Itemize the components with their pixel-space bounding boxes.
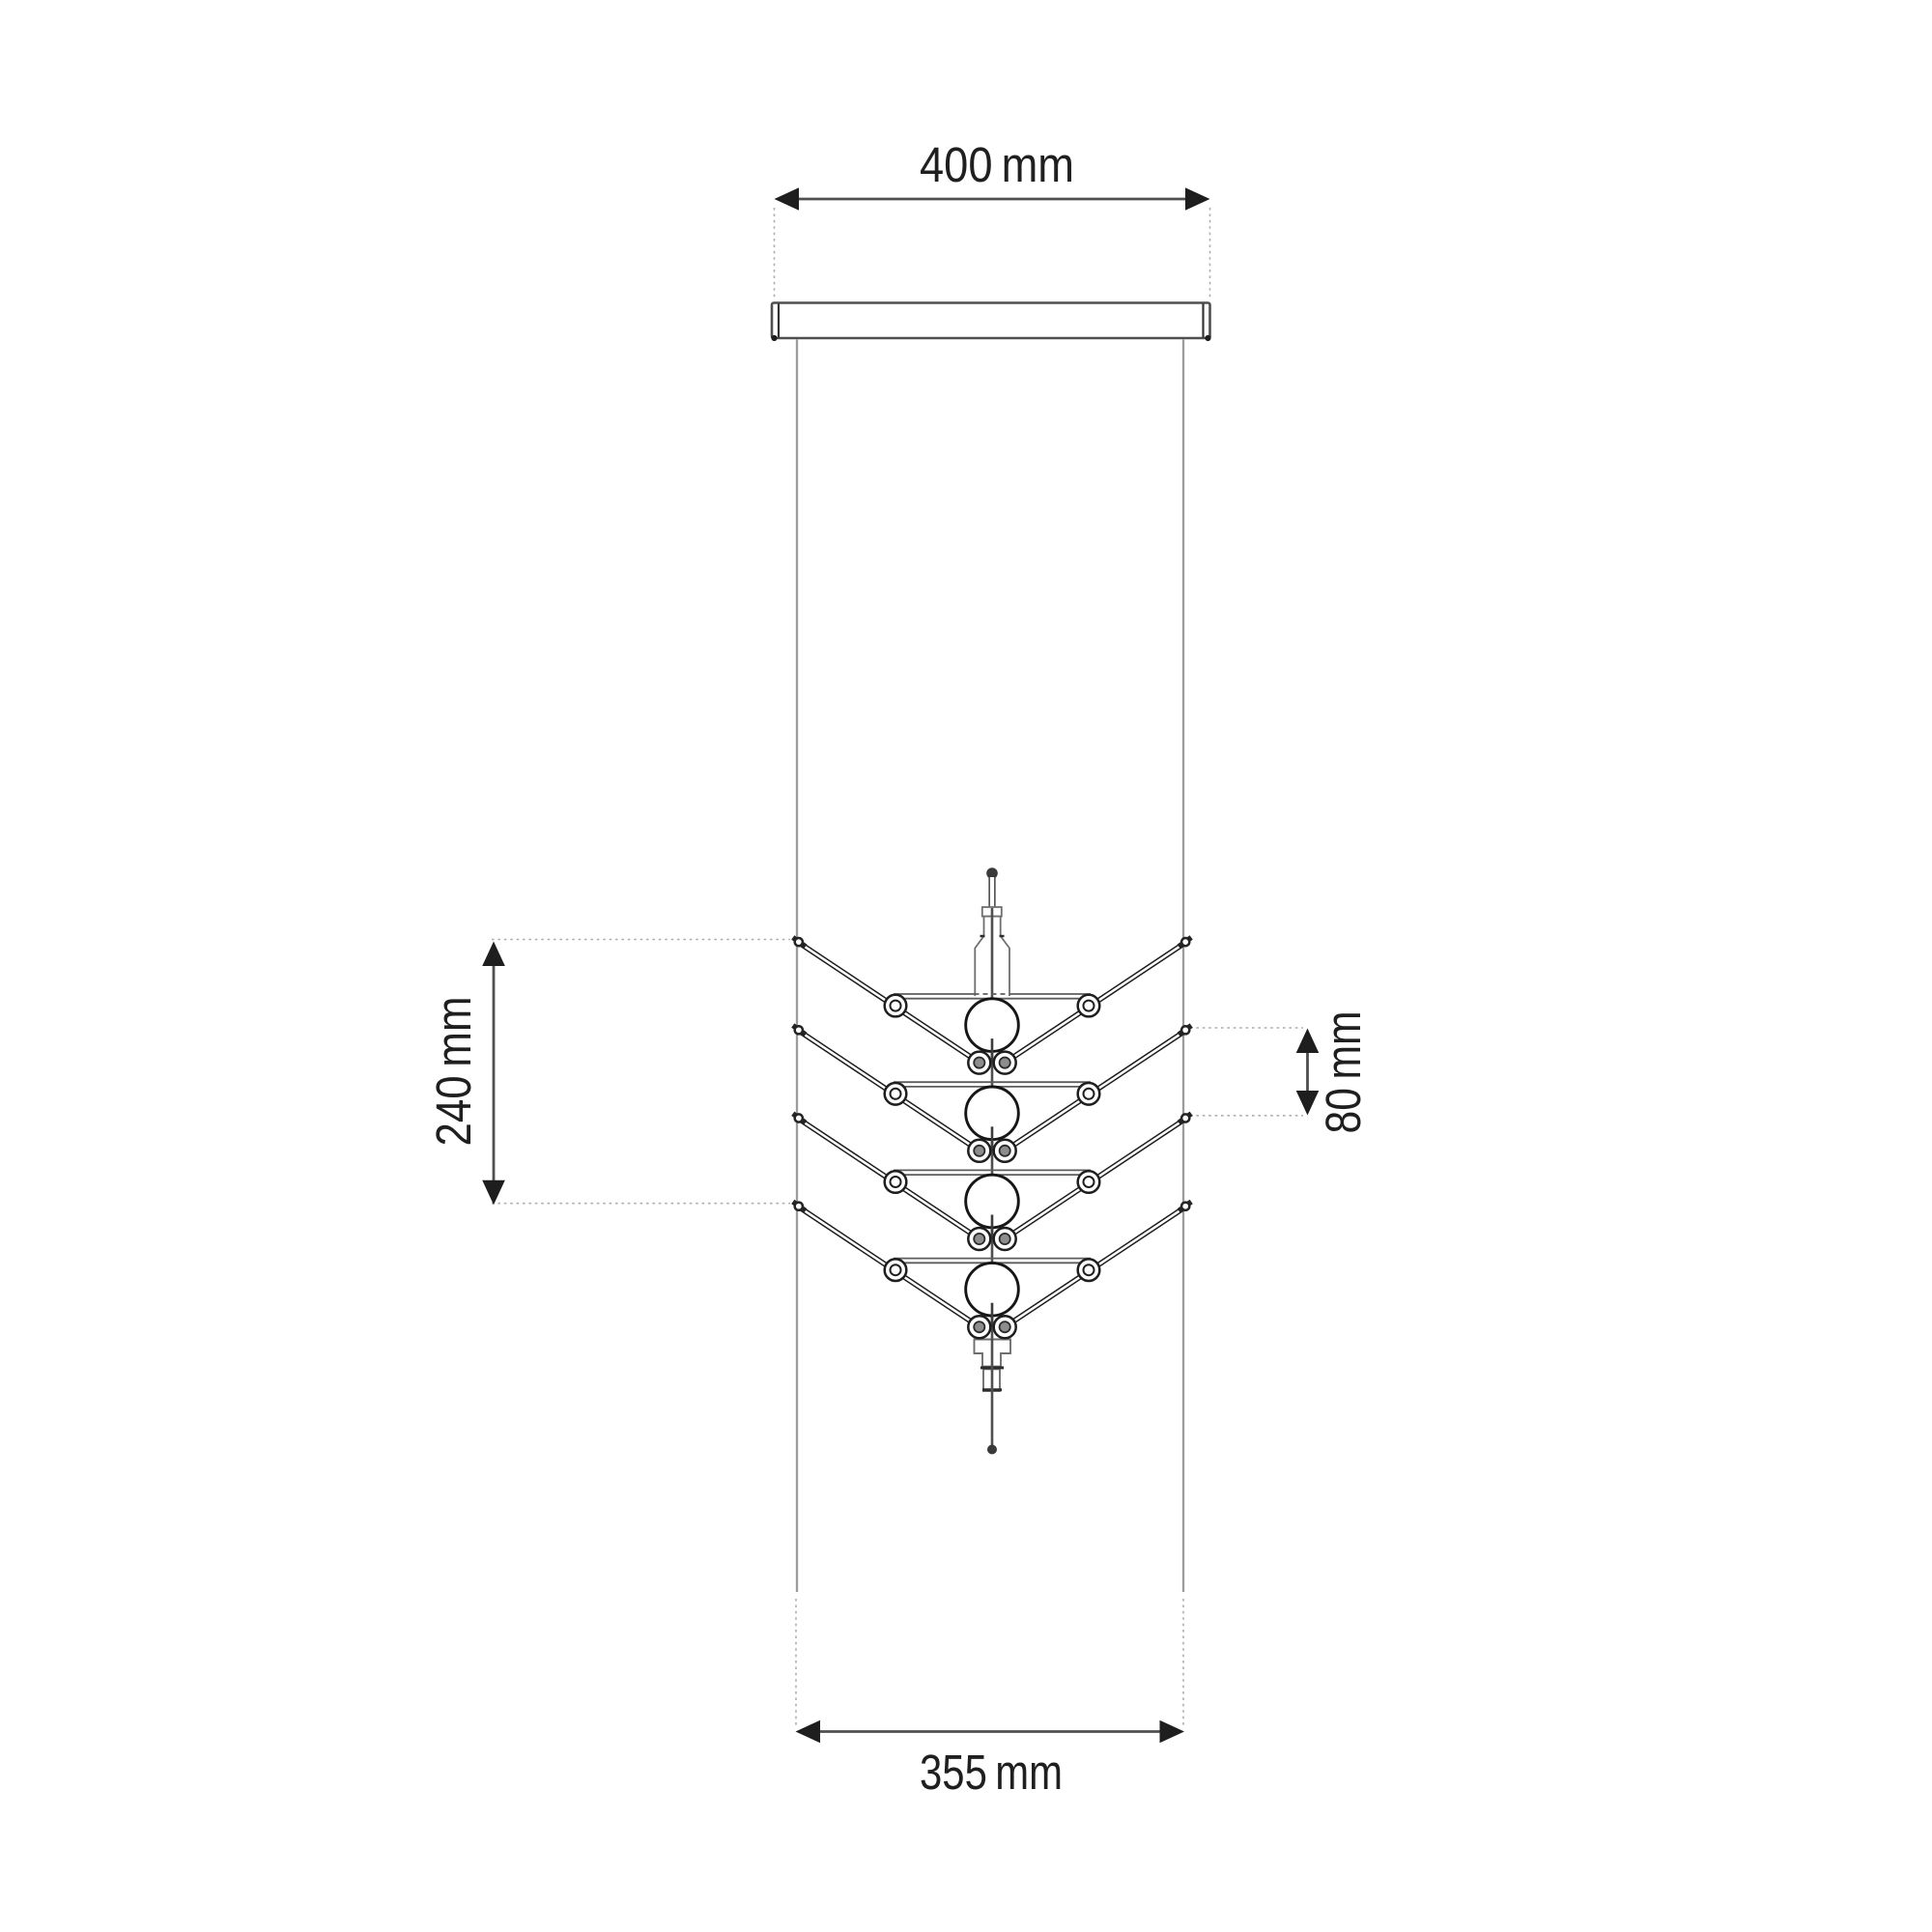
svg-text:80 mm: 80 mm <box>1316 1011 1371 1134</box>
svg-text:355 mm: 355 mm <box>920 1745 1063 1800</box>
svg-text:240 mm: 240 mm <box>426 997 481 1147</box>
svg-text:400 mm: 400 mm <box>920 137 1074 192</box>
